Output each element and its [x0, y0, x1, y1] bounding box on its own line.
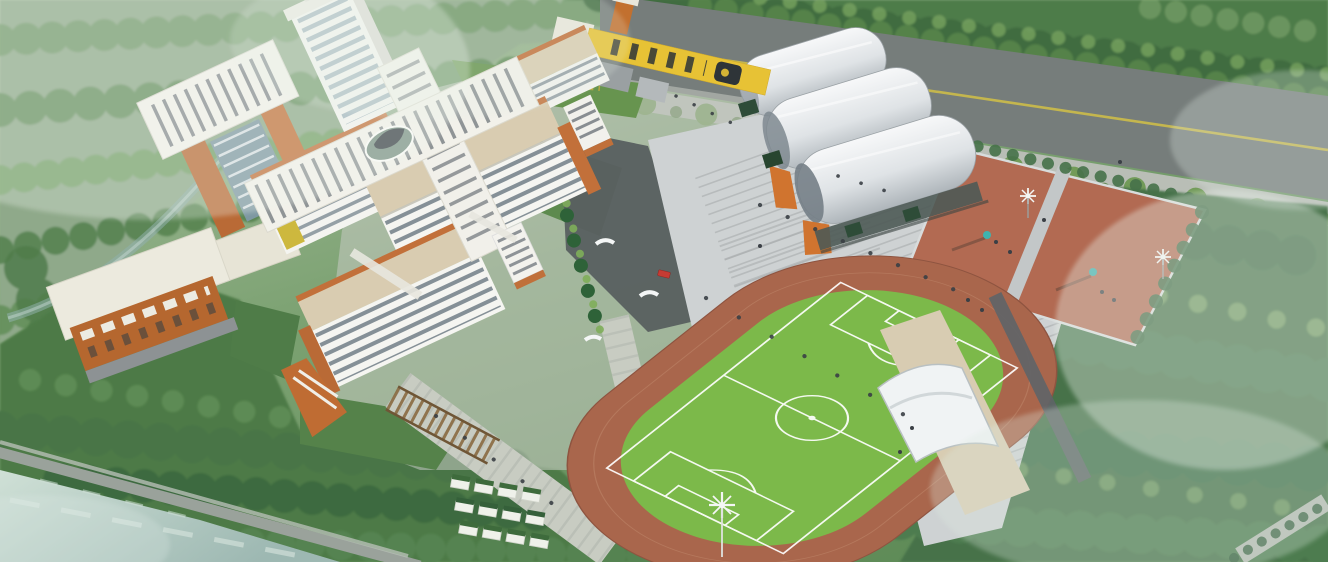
lamp-head — [1026, 194, 1030, 198]
person-dot — [966, 298, 970, 302]
teal-umbrella — [983, 231, 991, 239]
person-dot — [980, 308, 984, 312]
person-dot — [1042, 218, 1046, 222]
person-dot — [910, 426, 914, 430]
floodlight-head — [719, 502, 725, 508]
person-dot — [758, 244, 762, 248]
person-dot — [898, 450, 902, 454]
campus-rendering-stage — [0, 0, 1328, 562]
campus-aerial-rendering — [0, 0, 1328, 562]
person-dot — [1118, 160, 1122, 164]
center-spot — [808, 416, 815, 420]
person-dot — [1008, 250, 1012, 254]
person-dot — [994, 240, 998, 244]
